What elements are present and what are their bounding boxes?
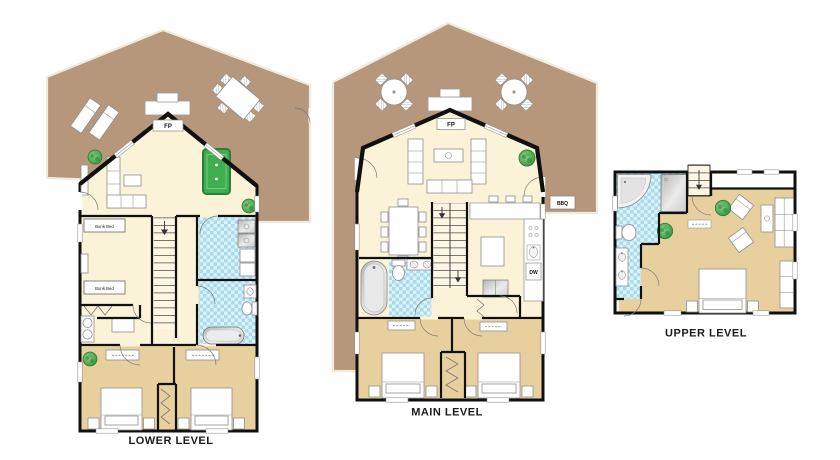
plant-icon bbox=[83, 352, 97, 366]
lower-stairs bbox=[154, 217, 175, 329]
plant-icon bbox=[242, 199, 256, 213]
upper-console-icon bbox=[688, 220, 711, 228]
bunk-bed-bottom-icon: Bunk Bed bbox=[84, 281, 125, 294]
upper-dresser-icon bbox=[780, 261, 794, 308]
bar-counter bbox=[470, 203, 540, 219]
lower-toilet-icon bbox=[242, 302, 257, 315]
patio-table-icon bbox=[375, 73, 413, 111]
patio-table-icon bbox=[495, 73, 533, 111]
main-dresser-left-icon bbox=[388, 321, 415, 330]
main-fireplace: FP bbox=[437, 119, 465, 130]
bbq-label: BBQ bbox=[557, 201, 568, 207]
upper-vanity-sinks-icon bbox=[616, 248, 628, 286]
main-level-caption: MAIN LEVEL bbox=[411, 407, 483, 419]
dishwasher-label: DW bbox=[529, 270, 538, 276]
kitchen-island-icon bbox=[481, 237, 504, 266]
ottoman-bench-icon bbox=[427, 180, 472, 193]
shower-icon bbox=[661, 175, 687, 212]
main-dresser-right-icon bbox=[480, 322, 507, 331]
dishwasher: DW bbox=[526, 263, 541, 280]
main-toilet-icon bbox=[392, 260, 405, 281]
bbq-grill: BBQ bbox=[550, 196, 575, 209]
plant-icon bbox=[88, 150, 102, 164]
upper-level-caption: UPPER LEVEL bbox=[665, 328, 747, 340]
fridge-icon bbox=[483, 280, 508, 297]
side-table-icon bbox=[761, 205, 773, 232]
coffee-table-icon bbox=[124, 175, 141, 186]
main-bathtub-icon bbox=[361, 261, 387, 315]
plant-icon bbox=[715, 200, 730, 215]
lower-bathtub-icon bbox=[203, 327, 244, 344]
upper-level-plan: UPPER LEVEL bbox=[613, 165, 797, 340]
main-double-sink-icon bbox=[407, 259, 433, 270]
bar-stool-icon bbox=[489, 196, 498, 202]
shelf-unit-icon bbox=[775, 198, 794, 247]
main-stairs bbox=[434, 203, 467, 288]
bunk-bed-top-label: Bunk Bed bbox=[95, 224, 114, 229]
main-level-plan: BBQ bbox=[333, 23, 597, 419]
sofa-icon bbox=[408, 139, 423, 184]
lower-level-plan: Bunk Bed Bunk Bed bbox=[47, 30, 310, 447]
lower-bath-sink-icon bbox=[244, 285, 256, 298]
floorplan-image: Bunk Bed Bunk Bed bbox=[0, 0, 840, 460]
coffee-table-icon bbox=[434, 149, 463, 162]
bar-stool-icon bbox=[506, 196, 515, 202]
upper-toilet-icon bbox=[616, 225, 636, 241]
lower-level-caption: LOWER LEVEL bbox=[129, 435, 214, 447]
bar-stool-icon bbox=[523, 196, 532, 202]
lower-dresser-right-icon bbox=[186, 350, 219, 360]
upper-stairs bbox=[688, 165, 710, 196]
open-to-below-strip bbox=[713, 174, 794, 187]
bunk-bed-top-icon: Bunk Bed bbox=[84, 219, 125, 232]
main-fireplace-label: FP bbox=[447, 123, 455, 129]
lower-fireplace-label: FP bbox=[164, 124, 172, 130]
bunk-bed-bottom-label: Bunk Bed bbox=[95, 286, 114, 291]
sofa-icon bbox=[471, 139, 486, 184]
bunkroom-dresser-icon bbox=[81, 254, 88, 273]
plant-icon bbox=[519, 150, 535, 166]
lower-fireplace: FP bbox=[153, 120, 183, 131]
